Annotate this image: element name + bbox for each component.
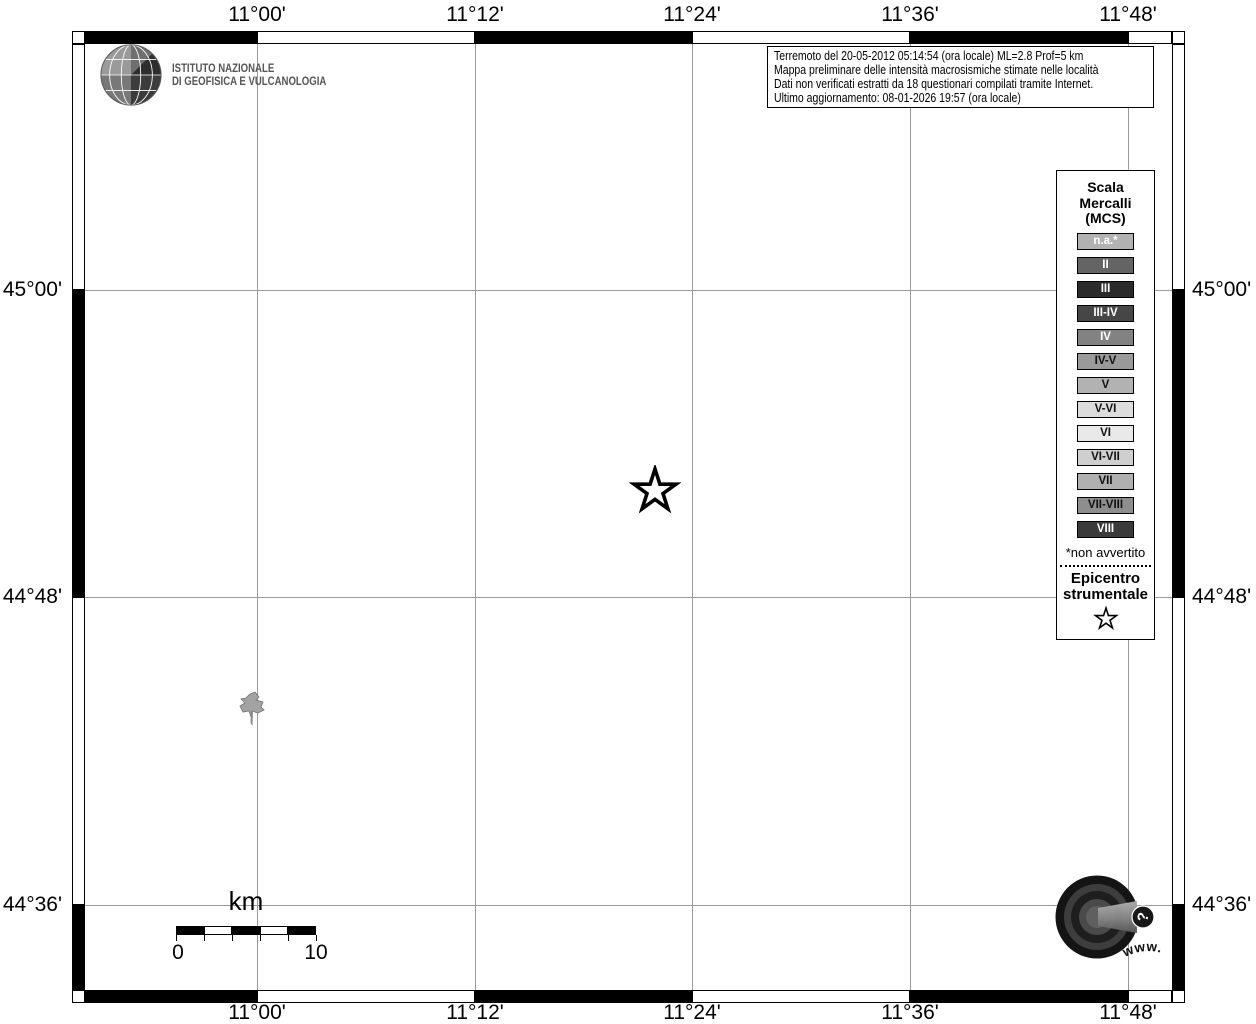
frame-corner [1172, 31, 1185, 44]
frame-segment-right [1172, 597, 1185, 905]
hst-logo: ? www.haisentitoilterremoto.it [1033, 853, 1161, 981]
scalebar-segment [204, 926, 232, 935]
frame-corner [72, 31, 85, 44]
frame-segment-left [72, 597, 85, 905]
grid-line-vertical [475, 44, 476, 990]
legend-footnote: *non avvertito [1057, 545, 1154, 560]
axis-label-lon-top: 11°36' [881, 3, 939, 27]
frame-segment-top [692, 31, 910, 44]
frame-segment-top [910, 31, 1128, 44]
grid-line-vertical [257, 44, 258, 990]
frame-segment-left [72, 290, 85, 597]
epicenter-legend-line1: Epicentro [1057, 571, 1154, 587]
axis-label-lon-top: 11°48' [1099, 3, 1157, 27]
scalebar-tick [232, 935, 233, 941]
frame-segment-top [1128, 31, 1172, 44]
axis-label-lat-right: 44°36' [1192, 893, 1251, 917]
map-canvas: km 0 10 ? www.haisentitoilterremoto.it 1… [0, 0, 1256, 1024]
legend-item: VI-VII [1077, 449, 1134, 466]
frame-segment-top [475, 31, 692, 44]
legend-panel: Scala Mercalli (MCS) n.a.*IIIIIIII-IVIVI… [1056, 170, 1155, 640]
axis-label-lon-bottom: 11°48' [1099, 1001, 1157, 1024]
legend-item: III-IV [1077, 305, 1134, 322]
epicenter-star-icon [629, 465, 681, 517]
scalebar-title: km [229, 886, 264, 917]
epicenter-legend-star-icon [1093, 606, 1119, 632]
legend-title-line1: Scala [1057, 180, 1154, 196]
axis-label-lon-top: 11°12' [446, 3, 504, 27]
legend-title-line3: (MCS) [1057, 211, 1154, 227]
axis-label-lat-left: 44°36' [0, 893, 62, 917]
grid-line-vertical [910, 44, 911, 990]
legend-item: IV [1077, 329, 1134, 346]
hst-circular-text: www.haisentitoilterremoto.it [1119, 939, 1161, 981]
legend-items: n.a.*IIIIIIII-IVIVIV-VVV-VIVIVI-VIIVIIVI… [1057, 233, 1154, 538]
ingv-name-line2: DI GEOFISICA E VULCANOLOGIA [172, 75, 326, 88]
ingv-logo: ISTITUTO NAZIONALE DI GEOFISICA E VULCAN… [98, 42, 365, 108]
epicenter-legend-label: Epicentro strumentale [1057, 571, 1154, 603]
frame-segment-right [1172, 905, 1185, 990]
scalebar-segment [288, 926, 316, 935]
legend-title-line2: Mercalli [1057, 196, 1154, 212]
scalebar-segment [232, 926, 260, 935]
ingv-name: ISTITUTO NAZIONALE DI GEOFISICA E VULCAN… [172, 62, 326, 88]
frame-segment-left [72, 44, 85, 290]
legend-item: n.a.* [1077, 233, 1134, 250]
scalebar-tick [260, 935, 261, 941]
axis-label-lat-right: 45°00' [1192, 278, 1251, 302]
legend-divider [1060, 565, 1151, 567]
grid-line-vertical [692, 44, 693, 990]
legend-item: VII [1077, 473, 1134, 490]
epicenter-legend-line2: strumentale [1057, 587, 1154, 603]
axis-label-lon-top: 11°24' [663, 3, 721, 27]
legend-item: II [1077, 257, 1134, 274]
legend-item: VII-VIII [1077, 497, 1134, 514]
axis-label-lon-bottom: 11°12' [446, 1001, 504, 1024]
info-line-source: Dati non verificati estratti da 18 quest… [774, 78, 1087, 92]
legend-item: V-VI [1077, 401, 1134, 418]
axis-label-lon-bottom: 11°24' [663, 1001, 721, 1024]
frame-segment-bottom [475, 990, 692, 1003]
axis-label-lon-bottom: 11°36' [881, 1001, 939, 1024]
frame-segment-bottom [257, 990, 475, 1003]
info-line-map-type: Mappa preliminare delle intensità macros… [774, 64, 1087, 78]
frame-segment-bottom [692, 990, 910, 1003]
scalebar-start-label: 0 [172, 941, 184, 965]
legend-item: V [1077, 377, 1134, 394]
frame-segment-right [1172, 290, 1185, 597]
scalebar-segment [176, 926, 204, 935]
scalebar-tick [204, 935, 205, 941]
grid-line-horizontal [85, 597, 1172, 598]
frame-segment-left [72, 905, 85, 990]
legend-item: VIII [1077, 521, 1134, 538]
axis-label-lon-top: 11°00' [228, 3, 286, 27]
frame-corner [72, 990, 85, 1003]
frame-segment-right [1172, 44, 1185, 290]
info-line-updated: Ultimo aggiornamento: 08-01-2026 19:57 (… [774, 92, 1087, 106]
info-line-event: Terremoto del 20-05-2012 05:14:54 (ora l… [774, 50, 1087, 64]
frame-corner [1172, 990, 1185, 1003]
axis-label-lon-bottom: 11°00' [228, 1001, 286, 1024]
scalebar-segment [260, 926, 288, 935]
frame-segment-bottom [910, 990, 1128, 1003]
grid-line-horizontal [85, 290, 1172, 291]
axis-label-lat-right: 44°48' [1192, 585, 1251, 609]
info-box: Terremoto del 20-05-2012 05:14:54 (ora l… [767, 46, 1154, 108]
legend-item: III [1077, 281, 1134, 298]
scalebar-tick [288, 935, 289, 941]
legend-item: VI [1077, 425, 1134, 442]
ingv-globe-icon [98, 42, 164, 108]
axis-label-lat-left: 45°00' [0, 278, 62, 302]
legend-title: Scala Mercalli (MCS) [1057, 180, 1154, 227]
locality-shape [236, 690, 270, 730]
scalebar-end-label: 10 [304, 941, 327, 965]
axis-label-lat-left: 44°48' [0, 585, 62, 609]
legend-item: IV-V [1077, 353, 1134, 370]
